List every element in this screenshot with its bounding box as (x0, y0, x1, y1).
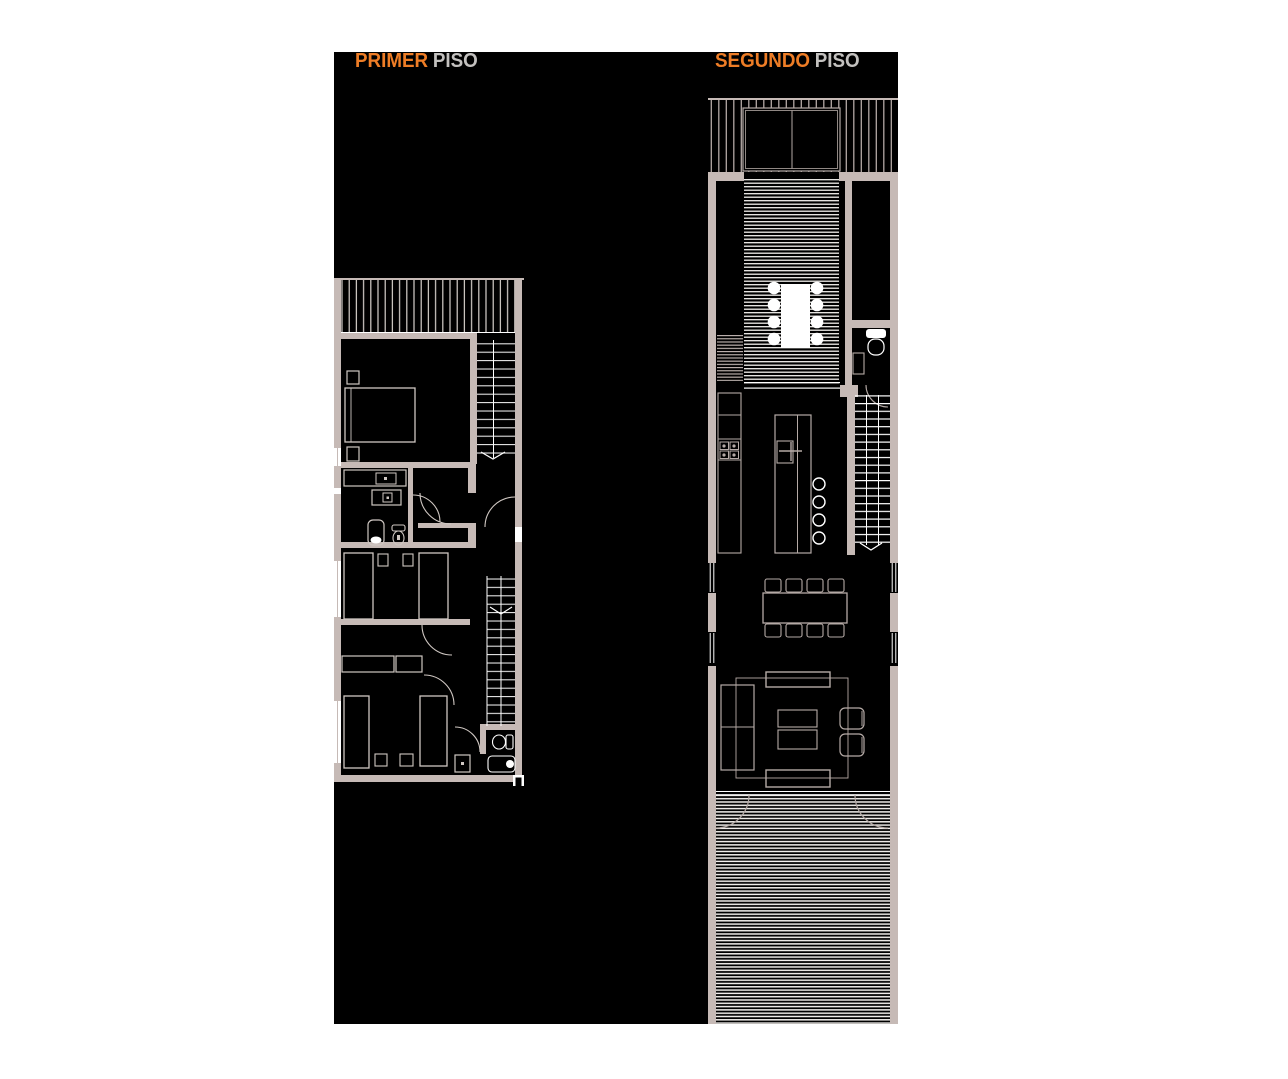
master-bed (345, 388, 415, 442)
toilet-icon (866, 329, 886, 338)
dining-chairs (765, 579, 844, 637)
single-bed (420, 696, 447, 766)
wardrobe (396, 656, 422, 672)
floor1-plan (334, 276, 524, 786)
floor2-title-rest: PISO (815, 50, 860, 72)
floor2-dining (763, 579, 847, 637)
kitchen-counter (718, 393, 741, 553)
vanity (853, 353, 864, 374)
coffee-table (778, 730, 817, 749)
single-bed (419, 553, 448, 619)
floor2-lower-terrace (716, 791, 890, 1024)
floor2-title: SEGUNDOPISO (715, 50, 860, 73)
nightstand (347, 371, 359, 384)
floor1-title: PRIMERPISO (355, 50, 478, 73)
dining-table (763, 593, 847, 623)
nightstand (400, 754, 413, 766)
door-arc (455, 727, 480, 752)
floor2-pergola (708, 98, 898, 172)
floor1-wardrobe-band (342, 656, 422, 672)
wardrobe (344, 470, 406, 486)
door-arc (413, 495, 440, 522)
nightstand (403, 554, 413, 566)
nightstand (378, 554, 388, 566)
bar-stools (813, 478, 825, 544)
floor1-bedroom-2 (344, 553, 448, 619)
wardrobe (342, 656, 394, 672)
toilet-icon (392, 525, 405, 531)
floor2-staircase (855, 395, 890, 550)
single-bed (344, 553, 373, 619)
armchair (840, 708, 864, 729)
floor2-plan (703, 95, 899, 1025)
floor2-windows (710, 563, 896, 663)
sofa (766, 672, 830, 687)
floor1-bedroom-3 (344, 696, 447, 768)
door-arc (485, 497, 515, 527)
floor1-entry-door-opening (515, 527, 522, 542)
toilet-icon (506, 735, 513, 749)
floor1-staircase-lower (487, 576, 515, 726)
floor2-upper-terrace (717, 177, 839, 385)
door-arc (422, 625, 452, 655)
floor2-kitchen (718, 382, 840, 553)
sofa (766, 770, 830, 787)
rug (736, 678, 848, 778)
door-arc (424, 675, 454, 705)
floor1-title-rest: PISO (433, 50, 478, 72)
floor1-master-bedroom (344, 371, 415, 486)
nightstand (347, 447, 359, 461)
floorplan-sheet: PRIMERPISO SEGUNDOPISO (0, 0, 1288, 1079)
floor1-title-accent: PRIMER (355, 50, 428, 72)
nightstand (375, 754, 387, 766)
floor2-title-accent: SEGUNDO (715, 50, 810, 72)
armchair (840, 734, 864, 756)
floor1-terrace-deck (341, 280, 517, 333)
floor2-living-room (721, 672, 864, 787)
coffee-table (778, 710, 817, 727)
louver-vent (717, 335, 743, 381)
stove-icon (720, 442, 739, 459)
single-bed (344, 696, 369, 768)
floor1-bathroom-1 (368, 490, 405, 545)
floor1-staircase-upper (477, 340, 515, 459)
kitchen-island (775, 415, 811, 553)
outdoor-table (781, 284, 810, 348)
